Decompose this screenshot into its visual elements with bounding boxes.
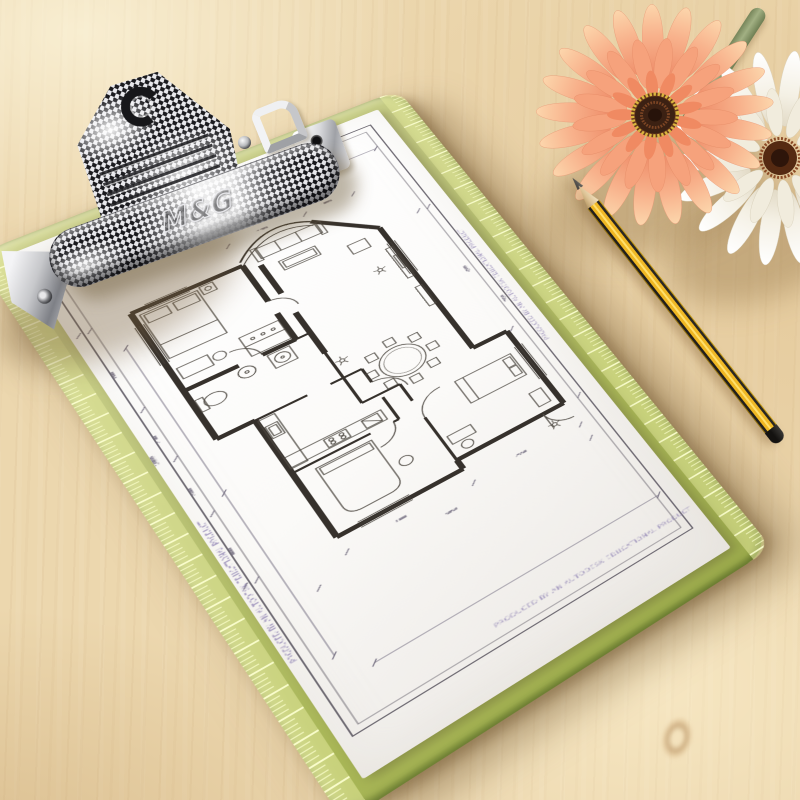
wood-knot xyxy=(654,710,700,766)
svg-text:3300: 3300 xyxy=(393,514,407,524)
desk-scene: PRODUCED BY AN AUTODESK EDUCATIONAL PROD… xyxy=(0,0,800,800)
clip-vent-slot xyxy=(99,133,209,176)
svg-text:2550: 2550 xyxy=(514,449,527,458)
svg-text:4500: 4500 xyxy=(462,264,472,272)
gerbera-peach xyxy=(530,0,800,248)
clipboard-clip[interactable]: M&G xyxy=(0,0,420,360)
clip-foot-hole xyxy=(35,287,54,306)
svg-text:5850: 5850 xyxy=(445,506,459,516)
svg-text:10800: 10800 xyxy=(148,455,160,467)
svg-text:PRODUCED BY AN AUTODESK EDUCAT: PRODUCED BY AN AUTODESK EDUCATIONAL PROD… xyxy=(493,505,694,629)
clip-brand-logo: M&G xyxy=(159,183,237,239)
hanging-ring-hole-icon xyxy=(119,85,162,128)
clip-rivet xyxy=(238,136,251,149)
